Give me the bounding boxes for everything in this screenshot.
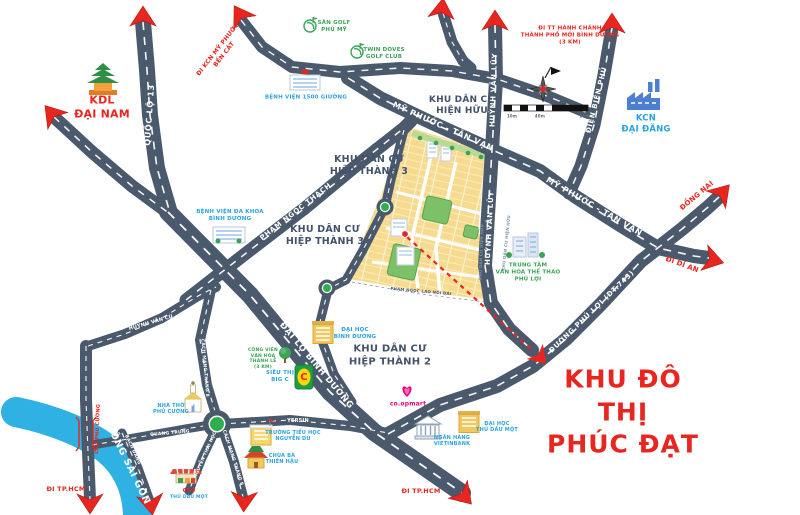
culture-center-icon <box>506 233 545 258</box>
bigc-logo-icon <box>295 365 313 389</box>
kdl-dai-nam-pagoda-icon <box>87 63 119 95</box>
road-cach-mang-thang8-n <box>200 290 218 421</box>
map-canvas <box>0 0 800 515</box>
scale-bar <box>504 105 588 111</box>
chua-ba-pagoda-icon <box>244 446 268 468</box>
kcn-factory-icon <box>627 79 660 110</box>
cong-vien-tree-icon <box>279 347 291 363</box>
road-quoc-lo-13 <box>143 22 170 213</box>
real-estate-location-map: KDL ĐẠI NAM KHU DÂN CƯ HIỆN HỮU KHU DÂN … <box>0 0 800 515</box>
hospital-da-khoa-icon <box>213 227 245 244</box>
dh-thu-dau-mot-icon <box>458 411 480 433</box>
saigon-river <box>16 412 138 515</box>
project-marker-icon <box>402 231 409 238</box>
nha-tho-church-icon <box>184 381 202 412</box>
road-branch-442 <box>443 13 471 68</box>
golf-phu-my-icon <box>304 17 318 32</box>
coopmart-heart-icon <box>402 386 411 397</box>
dh-binh-duong-icon <box>312 321 334 344</box>
golf-twin-doves-icon <box>351 43 365 58</box>
road-huynh-van-luy <box>485 25 532 350</box>
